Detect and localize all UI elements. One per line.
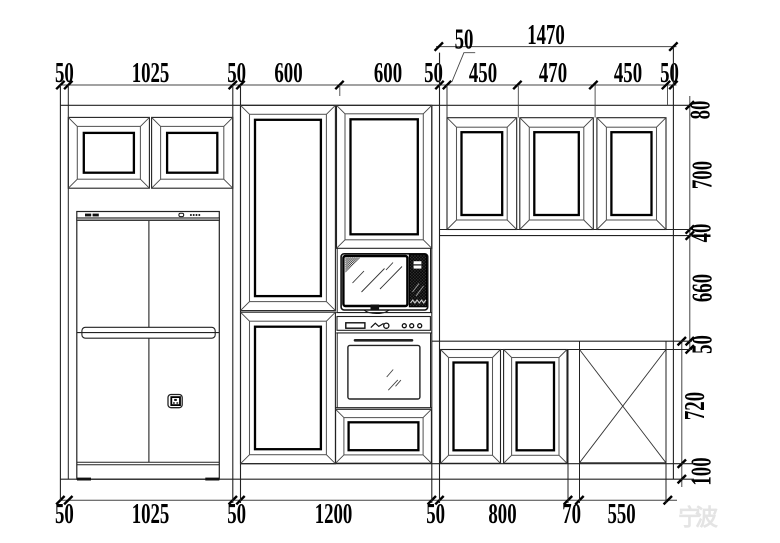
svg-text:1470: 1470 xyxy=(527,20,565,51)
svg-text:宁波: 宁波 xyxy=(678,504,719,530)
svg-text:700: 700 xyxy=(688,161,719,189)
svg-text:70: 70 xyxy=(562,499,581,530)
svg-text:50: 50 xyxy=(660,58,679,89)
svg-text:800: 800 xyxy=(488,499,516,530)
svg-text:660: 660 xyxy=(688,274,719,302)
svg-text:50: 50 xyxy=(55,499,74,530)
svg-text:470: 470 xyxy=(539,58,567,89)
svg-text:40: 40 xyxy=(687,224,718,243)
svg-text:50: 50 xyxy=(688,335,719,354)
svg-text:1200: 1200 xyxy=(315,499,353,530)
svg-text:550: 550 xyxy=(608,499,636,530)
svg-text:50: 50 xyxy=(55,58,74,89)
svg-text:1025: 1025 xyxy=(132,58,170,89)
svg-text:80: 80 xyxy=(686,101,717,120)
svg-text:50: 50 xyxy=(227,499,246,530)
svg-text:450: 450 xyxy=(469,58,497,89)
svg-text:50: 50 xyxy=(455,25,474,56)
svg-text:50: 50 xyxy=(227,58,246,89)
svg-text:450: 450 xyxy=(614,58,642,89)
svg-text:600: 600 xyxy=(274,58,302,89)
svg-text:100: 100 xyxy=(687,457,718,485)
svg-text:720: 720 xyxy=(680,392,711,420)
svg-text:600: 600 xyxy=(374,58,402,89)
svg-text:1025: 1025 xyxy=(132,499,170,530)
svg-text:50: 50 xyxy=(426,499,445,530)
svg-text:50: 50 xyxy=(424,58,443,89)
